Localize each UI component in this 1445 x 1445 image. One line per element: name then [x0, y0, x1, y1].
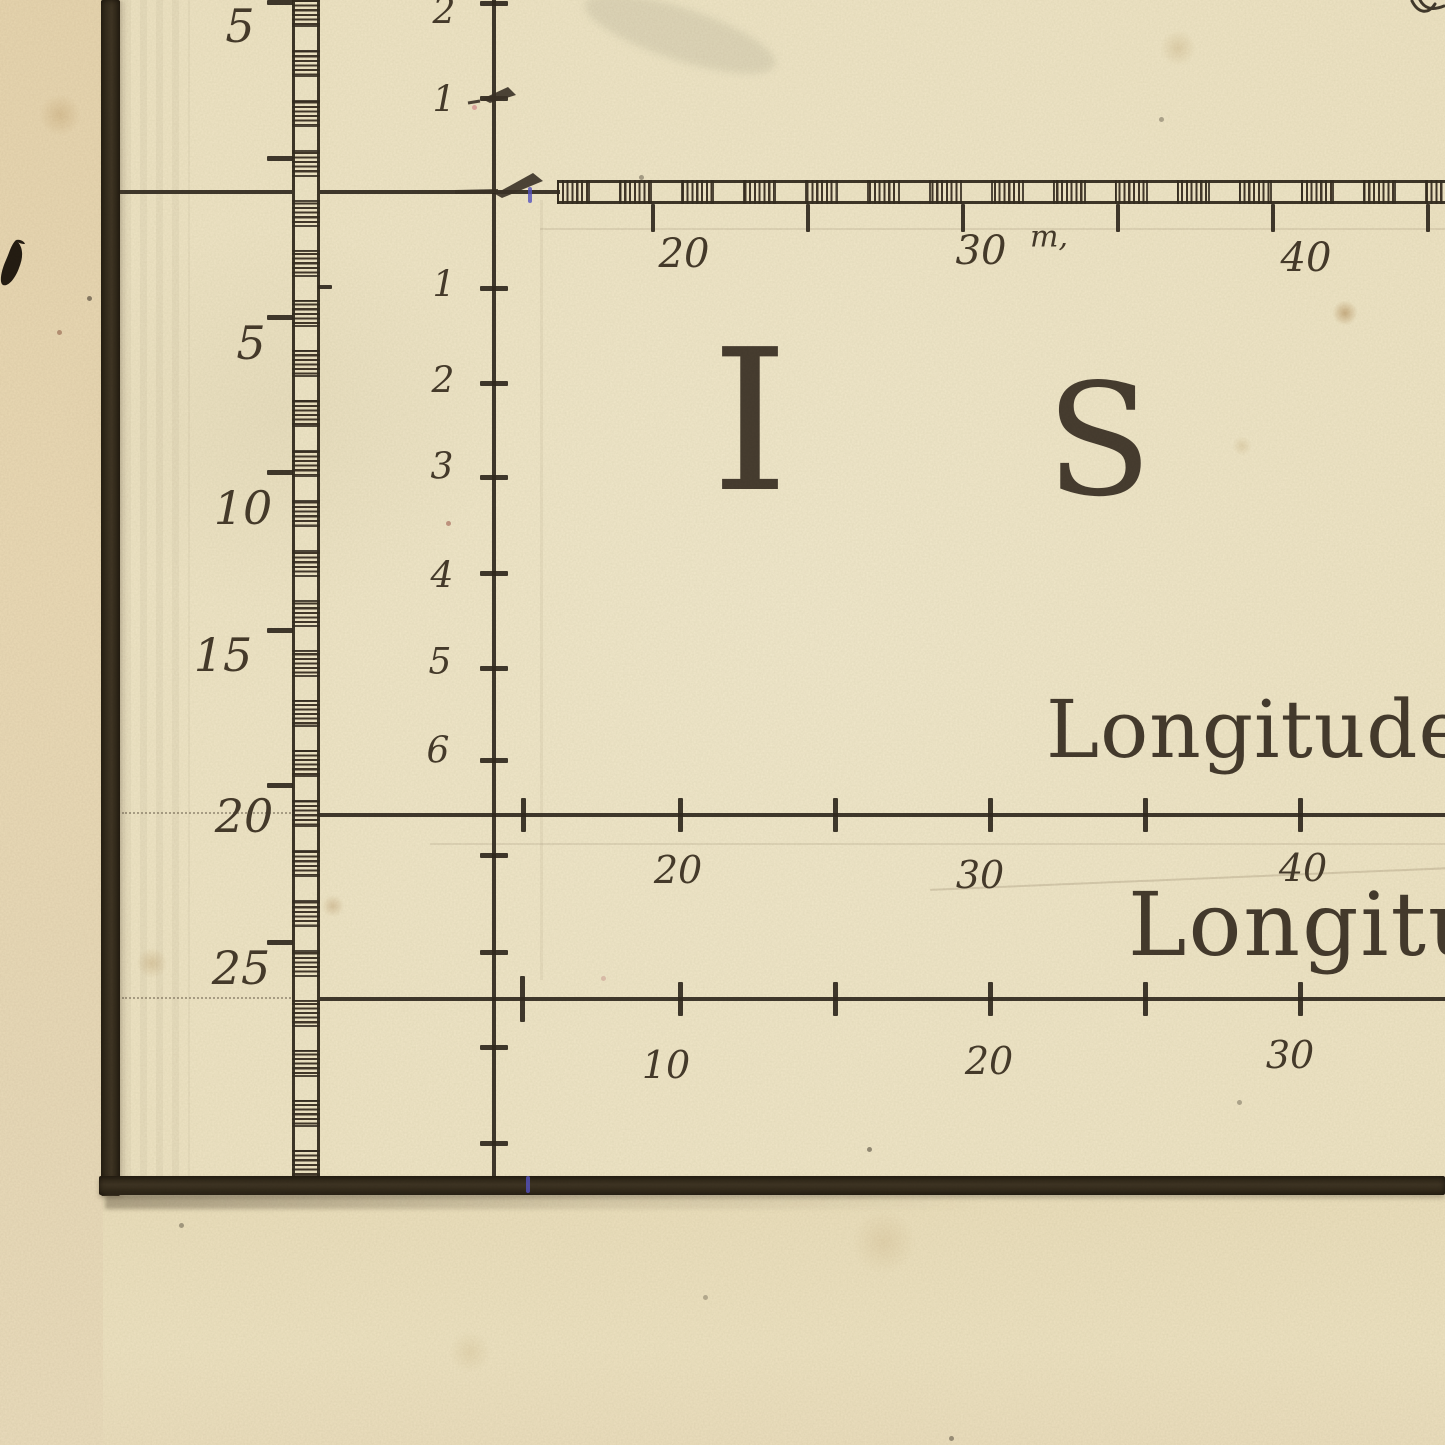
- scale-tick: [267, 156, 293, 161]
- cartouche-squiggle: [1408, 0, 1445, 22]
- scale-tick: [480, 666, 508, 671]
- scale-tick: [480, 381, 508, 386]
- lower-longitude-scale-line: [318, 997, 1445, 1001]
- minute-scale-label: 1: [433, 267, 456, 303]
- paper-streaks-texture: [124, 0, 190, 1178]
- scale-tick: [806, 204, 810, 232]
- scale-tick: [678, 982, 683, 1016]
- map-border-bottom: [99, 1176, 1445, 1195]
- map-border-left: [101, 0, 120, 1196]
- scale-tick: [480, 1141, 508, 1146]
- longitude-scale-label: 30: [956, 856, 1004, 894]
- scale-tick: [1143, 982, 1148, 1016]
- latitude-scale-label: 5: [236, 320, 265, 366]
- minute-scale-label: 2: [432, 363, 455, 399]
- longitude-scale-label: 20: [654, 851, 702, 889]
- longitude-caption-upper: Longitude: [1046, 690, 1445, 770]
- longitude-scale-label: 10: [642, 1046, 690, 1084]
- plate-crease: [540, 200, 543, 980]
- scale-tick: [480, 853, 508, 858]
- paper-margin-bottom: [103, 1196, 1445, 1445]
- longitude-caption-lower: Longitude: [1128, 881, 1445, 969]
- scale-tick: [833, 982, 838, 1016]
- top-scale-label: 30: [956, 231, 1007, 271]
- scale-tick: [1116, 204, 1120, 232]
- paper-specks: [0, 0, 3, 3]
- plate-crease: [430, 843, 1445, 845]
- border-ink-smudge: [105, 1194, 985, 1209]
- smudge-mark: [577, 0, 783, 90]
- minute-scale-label: 6: [427, 733, 450, 769]
- scale-tick: [267, 315, 293, 320]
- scale-tick: [267, 628, 293, 633]
- latitude-ladder-scale-bar: [292, 0, 320, 1178]
- scale-tick: [1143, 798, 1148, 832]
- top-minute-scale-bar: [557, 180, 1445, 204]
- scale-tick: [267, 0, 293, 5]
- scale-tick: [520, 976, 525, 1022]
- scale-tick: [267, 940, 293, 945]
- minute-scale-label: 3: [431, 449, 454, 485]
- pen-arrow-annotation: [440, 70, 560, 210]
- scale-tick: [318, 285, 332, 289]
- antique-map-sheet: 5 5 10 15 20 25 2 1 1 2 3 4 5 6 20 30 m,…: [0, 0, 1445, 1445]
- latitude-scale-label: 10: [214, 485, 273, 531]
- scale-tick: [521, 798, 526, 832]
- blue-ink-mark: [526, 1176, 530, 1193]
- map-title-letter-i: I: [711, 324, 788, 520]
- latitude-scale-label: 20: [215, 793, 274, 839]
- latitude-scale-label: 25: [212, 945, 271, 991]
- scale-tick: [678, 798, 683, 832]
- upper-longitude-scale-line: [318, 813, 1445, 817]
- scale-tick: [480, 286, 508, 291]
- map-title-letter-s: S: [1046, 363, 1152, 518]
- scale-tick: [988, 982, 993, 1016]
- scale-tick: [1426, 204, 1430, 232]
- latitude-scale-label: 5: [225, 3, 254, 49]
- scale-tick: [988, 798, 993, 832]
- dotted-line-extension: [122, 997, 294, 999]
- top-scale-label: 40: [1281, 238, 1332, 278]
- scale-tick: [1271, 204, 1275, 232]
- blue-ink-mark: [528, 187, 532, 203]
- scale-tick: [267, 470, 293, 475]
- scale-tick: [480, 1, 508, 6]
- longitude-scale-label: 20: [965, 1042, 1013, 1080]
- minute-scale-label: 5: [429, 644, 452, 680]
- scale-tick: [1298, 982, 1303, 1016]
- latitude-scale-label: 15: [194, 632, 253, 678]
- scale-tick: [833, 798, 838, 832]
- top-scale-label: 20: [659, 234, 710, 274]
- minute-scale-label: 4: [431, 558, 454, 594]
- scale-tick: [480, 758, 508, 763]
- scale-tick: [480, 571, 508, 576]
- scale-tick: [1298, 798, 1303, 832]
- scale-tick: [480, 1045, 508, 1050]
- scale-tick: [651, 204, 655, 232]
- scale-tick: [480, 475, 508, 480]
- ink-blot: [0, 238, 30, 290]
- scale-tick: [480, 950, 508, 955]
- scale-tick: [267, 783, 293, 788]
- top-scale-unit-label: m,: [1030, 222, 1068, 252]
- paper-margin-left: [0, 0, 103, 1445]
- longitude-scale-label: 30: [1266, 1036, 1314, 1074]
- minute-scale-label: 2: [433, 0, 456, 30]
